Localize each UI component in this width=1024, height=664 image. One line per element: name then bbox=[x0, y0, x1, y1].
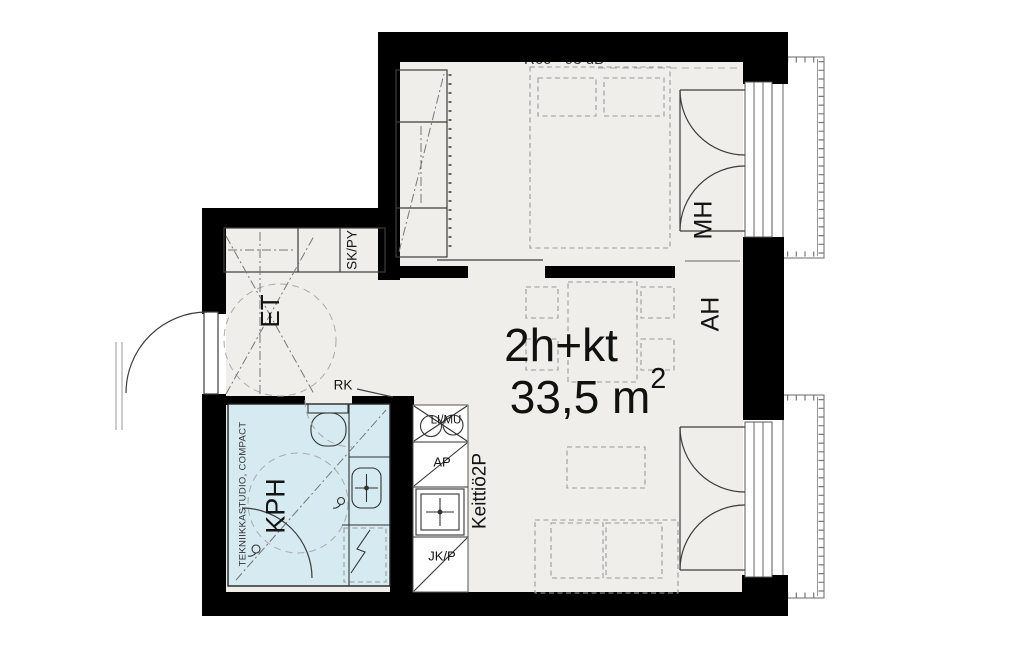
unit-type-label: 2h+kt bbox=[504, 322, 618, 368]
label-cleaning-closet: SK/PY bbox=[345, 230, 359, 270]
label-bathroom-module: TEKNIIKKASTUDIO, COMPACT bbox=[238, 422, 248, 567]
area-value: 33,5 m bbox=[510, 371, 651, 423]
room-label-living: AH bbox=[699, 297, 724, 332]
area-label: 33,5 m2 bbox=[510, 374, 667, 420]
balcony-top bbox=[783, 57, 824, 258]
label-stove-microwave: LI/MU bbox=[431, 415, 462, 427]
kitchen-run bbox=[413, 405, 468, 592]
balcony-bottom bbox=[783, 395, 824, 598]
label-electrical-cabinet: RK bbox=[334, 378, 353, 392]
room-label-bedroom: MH bbox=[692, 201, 717, 240]
label-fridge-freezer: JK/P bbox=[428, 550, 455, 563]
room-label-entry: ET bbox=[257, 294, 283, 327]
label-dishwasher: AP bbox=[433, 456, 450, 469]
area-exponent: 2 bbox=[650, 363, 666, 395]
floor-plan: R60 - 93 dB bbox=[0, 0, 1024, 664]
room-label-bathroom: KPH bbox=[263, 478, 290, 534]
bathroom-module bbox=[228, 400, 390, 586]
label-kitchen: Keittiö2P bbox=[471, 453, 490, 529]
